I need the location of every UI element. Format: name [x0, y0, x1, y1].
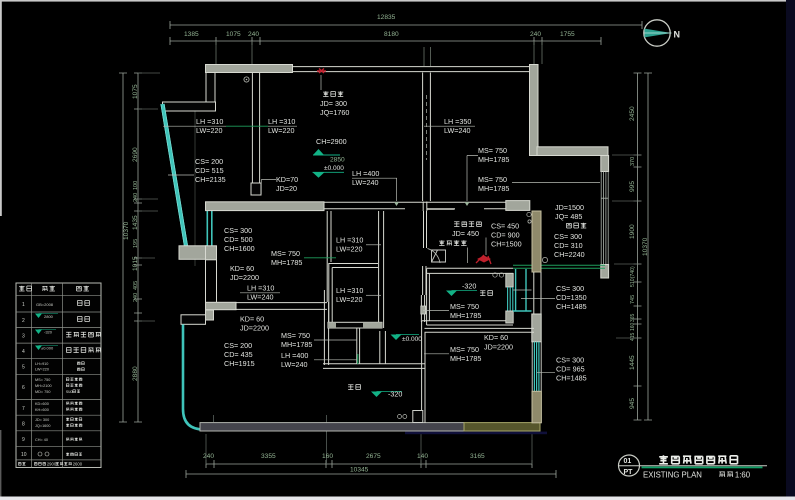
svg-text:CD=1350: CD=1350: [556, 293, 587, 302]
svg-text:510(740): 510(740): [630, 266, 636, 287]
svg-text:995: 995: [629, 181, 636, 192]
svg-text:LW=240: LW=240: [444, 126, 470, 135]
svg-text:CH=1500: CH=1500: [491, 240, 522, 249]
svg-text:JD= 450: JD= 450: [452, 229, 479, 238]
svg-text:1435: 1435: [132, 215, 139, 230]
svg-text:3: 3: [22, 334, 25, 340]
svg-text:JD=20: JD=20: [276, 184, 297, 193]
svg-text:CH=1600: CH=1600: [224, 244, 255, 253]
svg-text:LW=220: LW=220: [336, 295, 362, 304]
svg-text:2600: 2600: [73, 462, 83, 467]
svg-text:EXISTING PLAN: EXISTING PLAN: [643, 471, 702, 480]
svg-text:945: 945: [629, 398, 636, 409]
svg-text:LH =310: LH =310: [336, 286, 363, 295]
svg-text:10: 10: [21, 452, 27, 458]
svg-text:10370: 10370: [123, 221, 130, 240]
svg-text:365: 365: [630, 313, 636, 322]
svg-text:JQ= 485: JQ= 485: [555, 212, 582, 221]
svg-text:LH =310: LH =310: [268, 117, 295, 126]
svg-text:1385: 1385: [184, 31, 199, 38]
svg-text:N: N: [674, 30, 681, 40]
svg-text:CS= 300: CS= 300: [556, 356, 584, 365]
svg-text:240: 240: [133, 193, 139, 202]
svg-text:240: 240: [203, 453, 214, 460]
svg-text:LW=240: LW=240: [352, 178, 378, 187]
svg-text:CD= 900: CD= 900: [491, 231, 520, 240]
svg-text:2880: 2880: [132, 366, 139, 381]
svg-text:JD=2200: JD=2200: [230, 273, 259, 282]
svg-text:8180: 8180: [384, 31, 399, 38]
svg-text:01: 01: [624, 458, 632, 465]
svg-text:KD= 60: KD= 60: [484, 333, 508, 342]
svg-text:CS= 200: CS= 200: [195, 157, 223, 166]
svg-text:CH=1485: CH=1485: [556, 302, 587, 311]
svg-text:2675: 2675: [366, 453, 381, 460]
svg-text:240: 240: [530, 31, 541, 38]
svg-text:CS= 450: CS= 450: [491, 222, 519, 231]
svg-text:3165: 3165: [470, 453, 485, 460]
svg-text:KD= 60: KD= 60: [240, 315, 264, 324]
svg-text:LW=220: LW=220: [268, 126, 294, 135]
svg-text:MS= 750: MS= 750: [450, 345, 479, 354]
svg-text:1: 1: [22, 302, 25, 308]
svg-text:2800: 2800: [44, 314, 54, 319]
svg-text:160: 160: [322, 453, 333, 460]
svg-text:MD= 750: MD= 750: [35, 390, 51, 394]
svg-text:JQ=1760: JQ=1760: [320, 108, 349, 117]
svg-text:KD= 60: KD= 60: [230, 264, 254, 273]
svg-text:CH=1915: CH=1915: [224, 359, 255, 368]
svg-text:2690: 2690: [132, 147, 139, 162]
svg-text:MH=1785: MH=1785: [478, 155, 509, 164]
svg-text:1075: 1075: [132, 84, 139, 99]
svg-text:CD= 965: CD= 965: [556, 365, 585, 374]
svg-text:CS= 300: CS= 300: [224, 226, 252, 235]
svg-text:LW=220: LW=220: [196, 126, 222, 135]
svg-text:MS= 750: MS= 750: [271, 249, 300, 258]
svg-text:-320: -320: [462, 282, 476, 291]
svg-text:LH =400: LH =400: [281, 351, 308, 360]
svg-text:1075: 1075: [226, 31, 241, 38]
svg-text:4: 4: [22, 349, 25, 355]
svg-text:JD=1500: JD=1500: [555, 203, 584, 212]
svg-text:1755: 1755: [560, 31, 575, 38]
svg-text:JD=2200: JD=2200: [484, 343, 513, 352]
svg-text:160: 160: [630, 322, 636, 331]
svg-text:5: 5: [22, 365, 25, 371]
svg-text:10370: 10370: [642, 237, 649, 256]
svg-text:KH=600: KH=600: [35, 408, 49, 412]
svg-text:MH=1785: MH=1785: [478, 184, 509, 193]
svg-text:370: 370: [630, 157, 636, 166]
svg-text:MH=1785: MH=1785: [450, 311, 481, 320]
svg-text:240: 240: [133, 293, 139, 302]
svg-text:JD= 300: JD= 300: [320, 99, 347, 108]
svg-text:7: 7: [22, 406, 25, 412]
svg-text:1445: 1445: [629, 355, 636, 370]
svg-text:415: 415: [630, 332, 636, 341]
svg-text:CH=2900: CH=2900: [316, 137, 347, 146]
svg-text:LH =310: LH =310: [247, 284, 274, 293]
svg-text:MS= 750: MS= 750: [450, 302, 479, 311]
svg-text:KD=70: KD=70: [276, 175, 298, 184]
svg-text:LH =310: LH =310: [336, 236, 363, 245]
svg-text:2850: 2850: [330, 157, 345, 164]
svg-text:GB=2008: GB=2008: [36, 302, 54, 307]
svg-text:9: 9: [22, 437, 25, 443]
svg-text:2450: 2450: [629, 106, 636, 121]
svg-text:KD=600: KD=600: [35, 402, 49, 406]
svg-text:LW=240: LW=240: [247, 293, 273, 302]
svg-text:CS= 300: CS= 300: [554, 232, 582, 241]
svg-text:CH=2135: CH=2135: [195, 175, 226, 184]
svg-text:100: 100: [133, 181, 139, 190]
svg-text:MS= 750: MS= 750: [478, 175, 507, 184]
svg-text:±0.000: ±0.000: [402, 336, 422, 343]
svg-text:MS= 750: MS= 750: [281, 331, 310, 340]
svg-text:745: 745: [630, 295, 636, 304]
svg-text:CS= 200: CS= 200: [224, 341, 252, 350]
svg-text:±0.000: ±0.000: [324, 165, 344, 172]
svg-text:suo: suo: [66, 389, 73, 394]
svg-text:JD=2200: JD=2200: [240, 324, 269, 333]
svg-text:LH =350: LH =350: [444, 117, 471, 126]
svg-text:140: 140: [417, 453, 428, 460]
svg-text:LH =310: LH =310: [196, 117, 223, 126]
svg-text:CD= 515: CD= 515: [195, 166, 224, 175]
svg-text:CH=2240: CH=2240: [554, 250, 585, 259]
svg-text:MS= 750: MS= 750: [35, 378, 50, 382]
svg-text:MH=2100: MH=2100: [35, 384, 52, 388]
svg-text:2: 2: [22, 318, 25, 324]
svg-text:MS= 750: MS= 750: [478, 146, 507, 155]
svg-text:MH=1785: MH=1785: [281, 340, 312, 349]
svg-text:LH =400: LH =400: [352, 169, 379, 178]
svg-text:CH=1485: CH=1485: [556, 374, 587, 383]
svg-text:LW=220: LW=220: [336, 245, 362, 254]
svg-text:10345: 10345: [350, 467, 369, 474]
svg-text:±0.000: ±0.000: [41, 346, 54, 351]
svg-text:195: 195: [133, 239, 139, 248]
svg-text:2900: 2900: [47, 462, 57, 467]
svg-text:CS= 300: CS= 300: [556, 284, 584, 293]
svg-text:PT: PT: [624, 469, 634, 476]
svg-text:1900: 1900: [629, 224, 636, 239]
svg-text:LW=220: LW=220: [35, 368, 49, 372]
svg-text:6: 6: [22, 385, 25, 391]
svg-text:-320: -320: [44, 330, 53, 335]
svg-text:1015: 1015: [132, 256, 139, 271]
svg-text:CD= 500: CD= 500: [224, 235, 253, 244]
svg-text:240: 240: [248, 31, 259, 38]
svg-text:-320: -320: [388, 390, 402, 399]
svg-text:8: 8: [22, 422, 25, 428]
svg-text:LH=910: LH=910: [35, 362, 48, 366]
svg-text:12835: 12835: [377, 14, 396, 21]
svg-text:CD= 310: CD= 310: [554, 241, 583, 250]
svg-text:CD= 435: CD= 435: [224, 350, 253, 359]
svg-text:CH= 40: CH= 40: [35, 438, 48, 442]
svg-text:MH=1785: MH=1785: [271, 258, 302, 267]
svg-text:JD= 300: JD= 300: [35, 418, 49, 422]
svg-text:405: 405: [133, 281, 139, 290]
svg-text:3355: 3355: [261, 453, 276, 460]
svg-text:MH=1785: MH=1785: [450, 354, 481, 363]
svg-text:JQ=1600: JQ=1600: [35, 424, 51, 428]
svg-text:LW=240: LW=240: [281, 360, 307, 369]
svg-text:1:60: 1:60: [735, 471, 751, 480]
